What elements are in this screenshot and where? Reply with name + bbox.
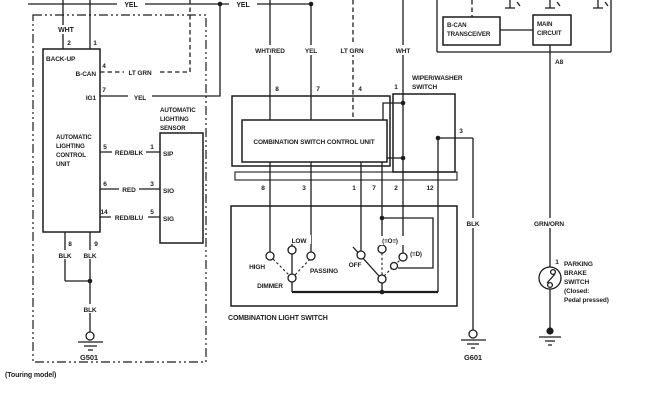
cscu-label: COMBINATION SWITCH CONTROL UNIT: [253, 139, 374, 146]
ground-symbol-parking-brake: [539, 327, 561, 345]
bcan-terminal-label: B-CAN: [76, 71, 97, 78]
wire-label-redblu: RED/BLU: [115, 215, 144, 222]
parking-line1: PARKING: [564, 261, 593, 268]
wire-label-ltgrn: LT GRN: [128, 70, 152, 77]
ig1-terminal-label: IG1: [86, 95, 97, 102]
wiper-washer-switch: WIPER/WASHER SWITCH 1 3: [394, 75, 463, 135]
pin-label-a8: A8: [555, 59, 564, 66]
label-low: LOW: [292, 238, 308, 245]
parking-line4: (Closed:: [564, 288, 589, 295]
strip-pin-2: 2: [394, 185, 398, 192]
right-section: B-CAN TRANSCEIVER MAIN CIRCUIT A8 GRN/OR…: [447, 21, 609, 362]
low-contact: [288, 246, 296, 254]
parking-line2: BRAKE: [564, 270, 587, 277]
parking-brake-switch-symbol: [539, 267, 561, 289]
sensor-pin-label-3: 3: [150, 181, 154, 188]
strip-pin-8: 8: [261, 185, 265, 192]
intermediate-contact: [391, 263, 398, 270]
label-off: OFF: [349, 262, 362, 269]
pin-label-7: 7: [102, 87, 106, 94]
wiper-pin-3: 3: [459, 128, 463, 135]
pin-label-14: 14: [100, 209, 108, 216]
pin-label-6: 6: [103, 181, 107, 188]
label-passing: PASSING: [310, 268, 338, 275]
wire-label-blk-2: BLK: [83, 253, 96, 260]
wire-label-yel-bus-1: YEL: [124, 2, 138, 9]
wire-label-yel-center: YEL: [305, 48, 317, 55]
alcu-name-line1: AUTOMATIC: [56, 134, 92, 141]
ground-symbol-g501: [78, 332, 103, 350]
sensor-title-line2: LIGHTING: [160, 116, 189, 123]
cscu-top-pin-7: 7: [316, 86, 320, 93]
light-switch-common-contact: [378, 275, 386, 283]
pin-label-8: 8: [68, 241, 72, 248]
wire-label-wht-center: WHT: [396, 48, 411, 55]
wiper-pin-1: 1: [394, 84, 398, 91]
component-boxes: [43, 15, 571, 306]
wiper-title-line2: SWITCH: [412, 84, 437, 91]
wiper-title-line1: WIPER/WASHER: [412, 75, 463, 82]
sensor-pin-label-1: 1: [150, 144, 154, 151]
alcu-name-line2: LIGHTING: [56, 143, 85, 150]
alcu-name-line3: CONTROL: [56, 152, 86, 159]
position-lamp-contact: [378, 245, 386, 253]
label-high: HIGH: [249, 264, 265, 271]
position-lamp-symbol: (≡O≡): [382, 238, 398, 245]
sensor-terminal-sio: SIO: [163, 188, 174, 195]
strip-pin-7: 7: [372, 185, 376, 192]
transceiver-line2: TRANSCEIVER: [447, 31, 491, 38]
wire-label-blk-right: BLK: [466, 221, 479, 228]
wire-label-ltgrn-center: LT GRN: [340, 48, 364, 55]
wire-label-red: RED: [122, 187, 136, 194]
main-circuit-line2: CIRCUIT: [537, 30, 562, 37]
passing-contact: [307, 252, 315, 260]
wire-label-blk-1: BLK: [58, 253, 71, 260]
switch-contacts: [266, 245, 407, 283]
backup-label: BACK-UP: [46, 56, 76, 63]
parking-line5: Pedal pressed): [564, 297, 609, 304]
wire-label-wht: WHT: [58, 27, 74, 34]
sensor-terminal-sig: SIG: [163, 216, 174, 223]
wire-label-yel-ig1: YEL: [134, 95, 146, 102]
dimmer-common-contact: [288, 274, 296, 282]
pin-label-4: 4: [102, 63, 106, 70]
strip-pin-3: 3: [302, 185, 306, 192]
pin-label-2: 2: [67, 40, 71, 47]
cscu-top-pin-4: 4: [358, 86, 362, 93]
main-circuit-line1: MAIN: [537, 21, 553, 28]
sensor-terminal-sip: SIP: [163, 151, 174, 158]
sensor-title-line1: AUTOMATIC: [160, 107, 196, 114]
wire-label-redblk: RED/BLK: [115, 150, 144, 157]
ground-symbol-g601: [461, 330, 486, 348]
touring-model-note: (Touring model): [5, 372, 56, 379]
wiring-diagram-canvas: YEL YEL WHT 2 1 BACK-UP 4 B-CAN LT GRN 7…: [0, 0, 650, 403]
wire-label-yel-bus-2: YEL: [236, 2, 250, 9]
wire-label-blk-3: BLK: [83, 307, 96, 314]
alcu-name-line4: UNIT: [56, 161, 70, 168]
wire-label-grnorn: GRN/ORN: [534, 221, 564, 228]
headlamp-contact: [399, 253, 407, 261]
strip-pin-12: 12: [426, 185, 434, 192]
off-contact: [357, 251, 365, 259]
ground-label-g601: G601: [464, 353, 482, 362]
parking-pin-1: 1: [555, 259, 559, 266]
parking-line3: SWITCH: [564, 279, 589, 286]
label-dimmer: DIMMER: [257, 283, 283, 290]
ground-label-g501: G501: [80, 353, 98, 362]
cutoff-connector-symbols: [505, 0, 608, 8]
light-switch-title: COMBINATION LIGHT SWITCH: [228, 315, 328, 322]
cscu-top-pin-8: 8: [275, 86, 279, 93]
wiring-diagram: YEL YEL WHT 2 1 BACK-UP 4 B-CAN LT GRN 7…: [0, 0, 650, 403]
high-contact: [266, 252, 274, 260]
pin-label-9: 9: [94, 241, 98, 248]
combination-light-switch: HIGH LOW PASSING DIMMER OFF (≡O≡) (≡D) C…: [228, 238, 422, 322]
strip-pin-1: 1: [352, 185, 356, 192]
transceiver-line1: B-CAN: [447, 22, 467, 29]
sensor-pin-label-5: 5: [150, 209, 154, 216]
wiper-washer-switch-box: [393, 94, 455, 172]
sensor-title-line3: SENSOR: [160, 125, 186, 132]
wire-label-whtred: WHT/RED: [255, 48, 285, 55]
pin-label-5: 5: [103, 144, 107, 151]
connector-strip: [235, 172, 457, 180]
headlamp-symbol: (≡D): [410, 251, 422, 258]
pin-label-1: 1: [93, 40, 97, 47]
